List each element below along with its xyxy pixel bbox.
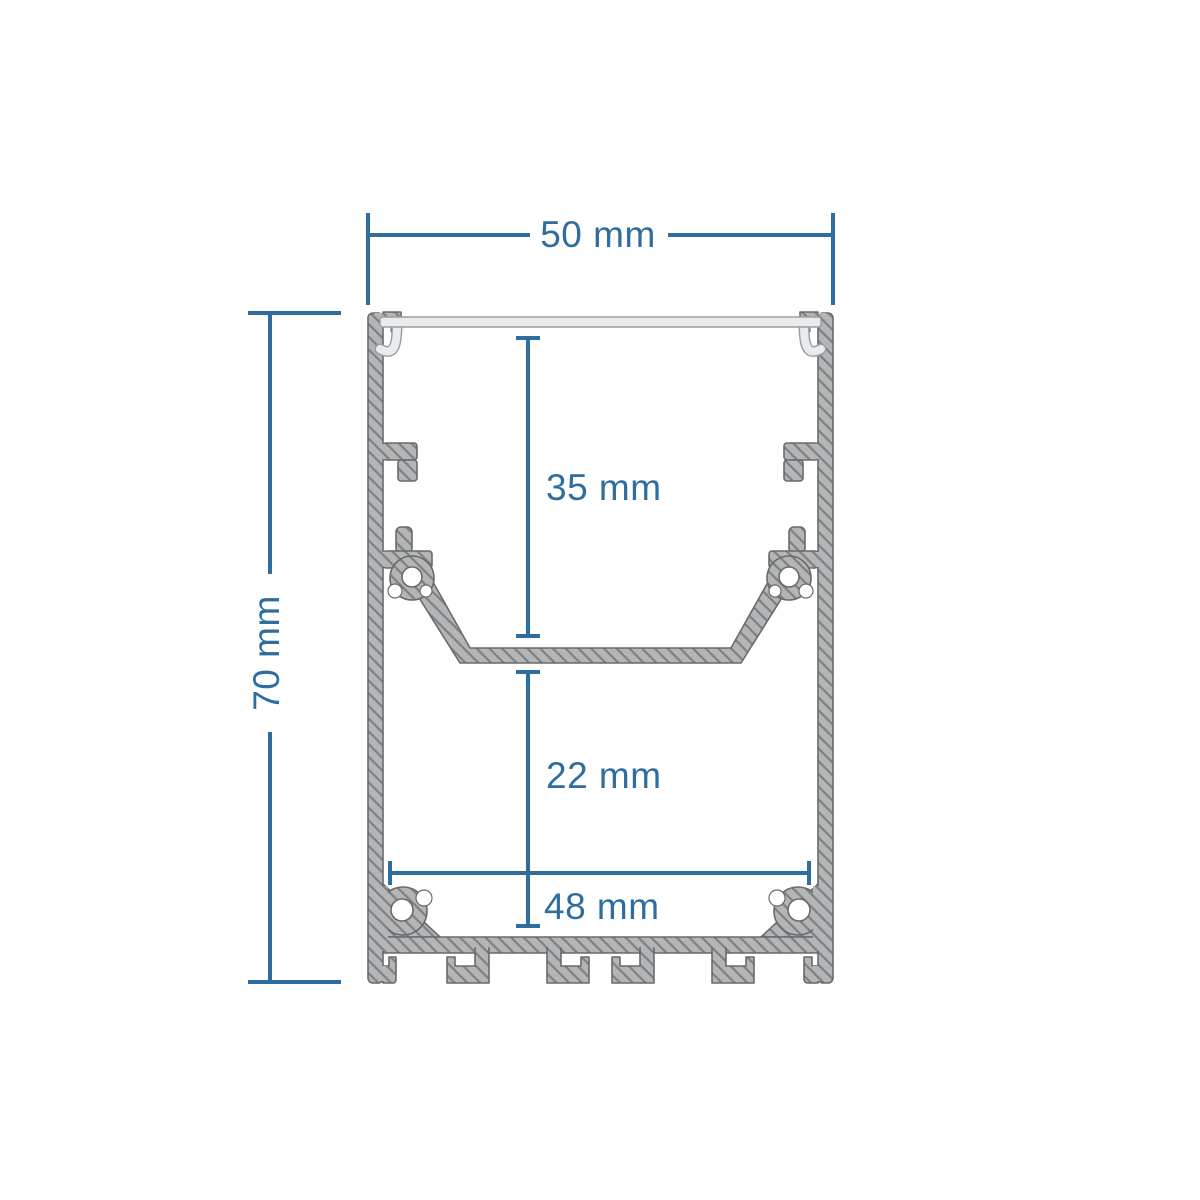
mid-hook-right [784,443,818,481]
technical-drawing-canvas: 50 mm 70 mm 35 mm 22 mm 48 mm [0,0,1200,1200]
diffuser-cover [380,317,821,351]
base-plate [383,937,818,953]
dimension-outer-width: 50 mm [368,213,833,305]
dim-label-outer-width: 50 mm [540,214,656,255]
dimension-outer-height: 70 mm [246,313,341,982]
profile-right-wall [818,313,833,983]
dim-label-lower-depth: 22 mm [546,755,662,796]
profile-left-wall [368,313,383,983]
cover-plate [380,317,821,327]
mid-hook-left [383,443,417,481]
profile-cross-section-drawing: 50 mm 70 mm 35 mm 22 mm 48 mm [0,0,1200,1200]
dimension-inner-width: 48 mm [390,861,809,927]
seam-patches [375,313,826,981]
dimension-upper-depth: 35 mm [516,338,662,636]
profile-body [368,312,833,983]
dim-label-upper-depth: 35 mm [546,467,662,508]
dim-label-inner-width: 48 mm [544,886,660,927]
dim-label-outer-height: 70 mm [246,595,287,711]
led-tray [406,566,795,663]
